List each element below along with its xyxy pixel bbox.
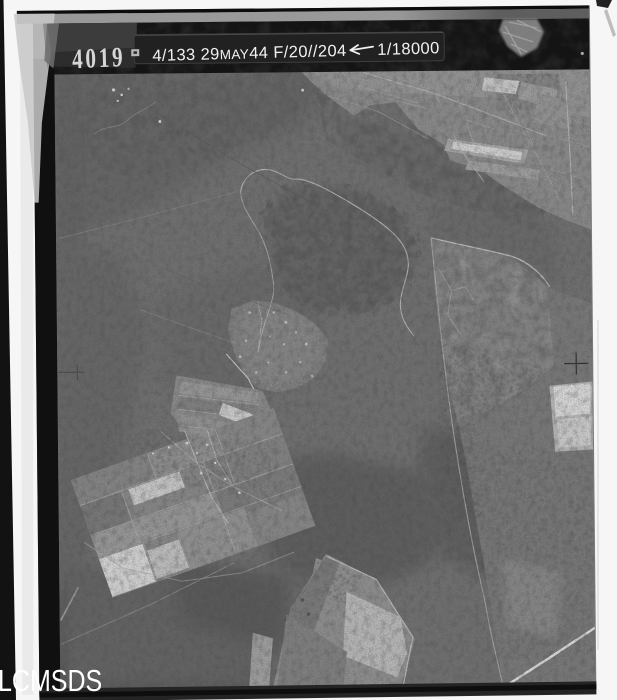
svg-text:LCMSDS: LCMSDS [0,664,102,698]
svg-text:1/18000: 1/18000 [377,39,440,59]
svg-text:4019: 4019 [72,42,126,75]
